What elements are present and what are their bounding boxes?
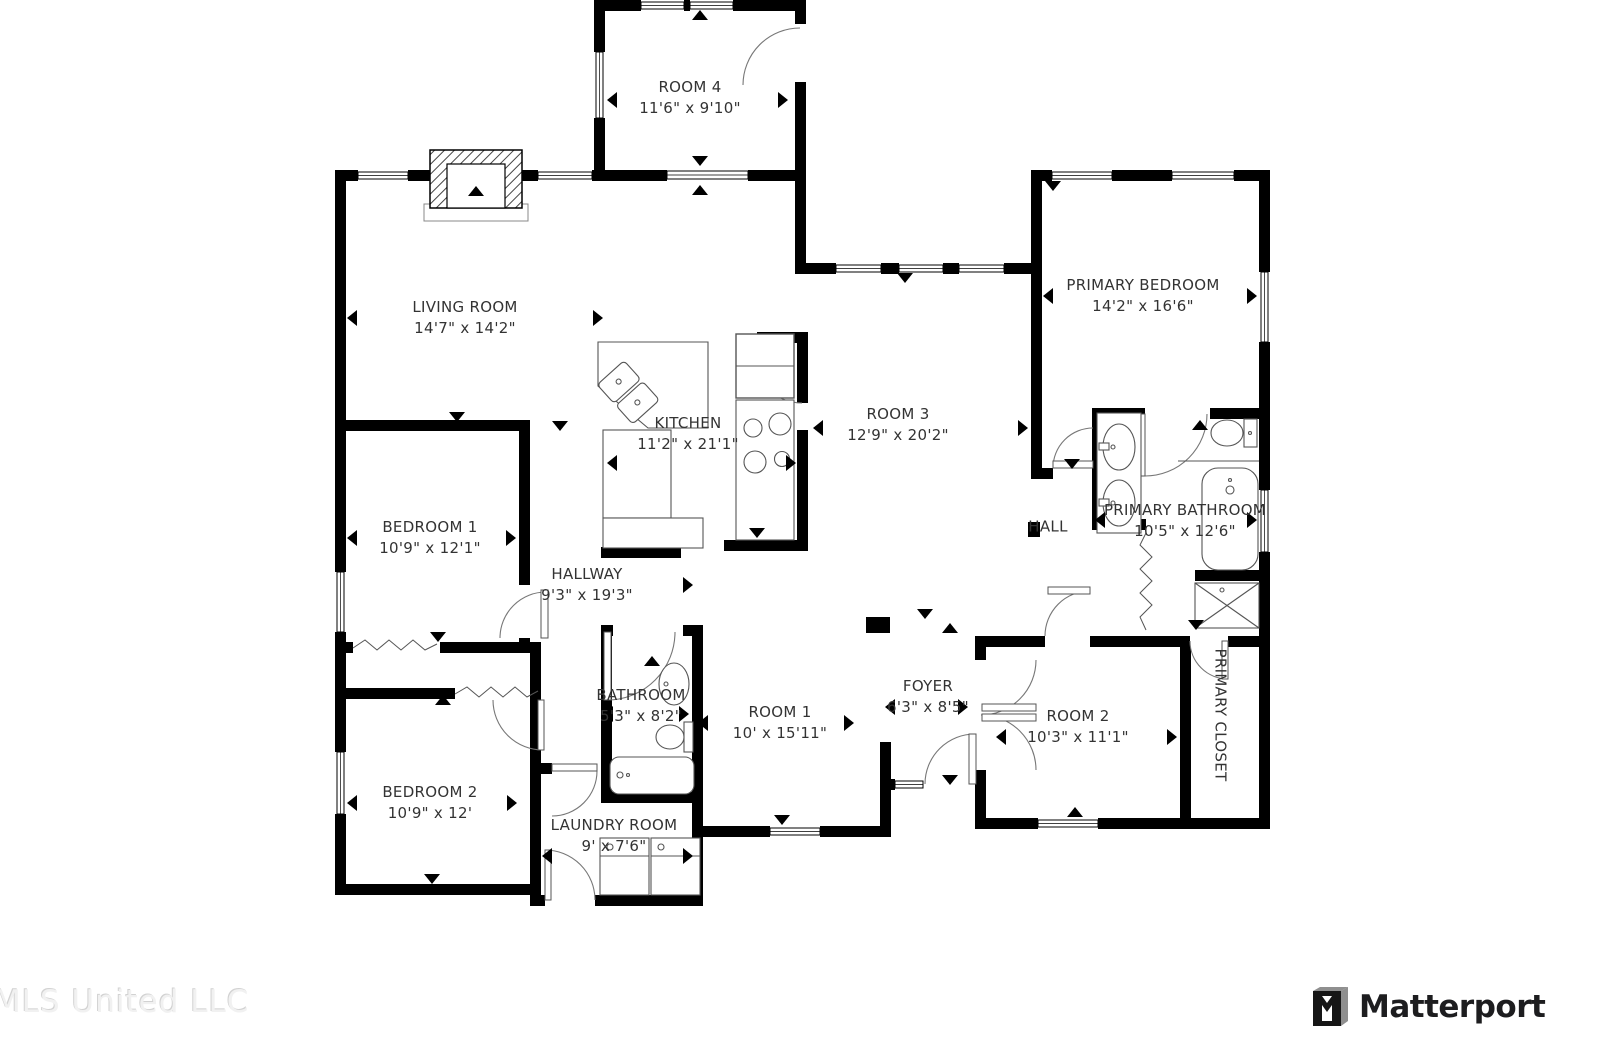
marker-triangle	[679, 706, 689, 722]
marker-triangle	[1167, 729, 1177, 745]
laundry-appliances	[600, 838, 700, 895]
marker-triangle	[958, 699, 968, 715]
wall	[335, 688, 455, 699]
wall	[975, 770, 986, 829]
wall	[1031, 181, 1042, 468]
wall	[594, 118, 605, 176]
wall	[795, 263, 836, 274]
wall	[1195, 570, 1259, 581]
door-arc	[981, 715, 1036, 770]
wall	[820, 826, 887, 837]
door-leaf	[538, 700, 544, 750]
marker-triangle	[813, 420, 823, 436]
door-leaf	[982, 714, 1036, 721]
door-leaf	[982, 704, 1036, 711]
kitchen-counter	[603, 430, 671, 518]
wall	[530, 763, 552, 774]
marker-triangle	[692, 185, 708, 195]
wall	[1234, 170, 1270, 181]
mls-watermark: MLS United LLC	[0, 984, 249, 1020]
wall-break	[353, 640, 437, 650]
marker-triangle	[430, 632, 446, 642]
wall	[797, 343, 808, 403]
marker-triangle	[347, 530, 357, 546]
marker-triangle	[552, 421, 568, 431]
wall	[1259, 181, 1270, 272]
marker-triangle	[692, 10, 708, 20]
marker-triangle	[885, 699, 895, 715]
marker-triangle	[506, 530, 516, 546]
primary-bathroom-fixtures	[1097, 413, 1259, 628]
marker-triangle	[1018, 420, 1028, 436]
wall	[1228, 636, 1270, 647]
marker-triangle	[1045, 181, 1061, 191]
door-leaf	[541, 590, 548, 638]
marker-triangle	[607, 92, 617, 108]
marker-triangle	[996, 729, 1006, 745]
matterport-logo: Matterport	[1308, 984, 1545, 1030]
wall	[881, 263, 899, 274]
marker-triangle	[774, 815, 790, 825]
floor-plan-canvas: ROOM 411'6" x 9'10"LIVING ROOM14'7" x 14…	[0, 0, 1600, 1055]
wall	[1112, 170, 1172, 181]
marker-triangle	[347, 795, 357, 811]
wall	[335, 884, 541, 895]
wall	[594, 0, 641, 11]
burner	[769, 413, 791, 435]
floor-plan-drawing	[0, 0, 1600, 1055]
wall	[1028, 522, 1040, 537]
wall	[1259, 552, 1270, 829]
wall	[440, 642, 541, 653]
wall	[1180, 636, 1190, 647]
door-leaf	[552, 764, 597, 771]
marker-triangle	[844, 715, 854, 731]
wall	[797, 430, 808, 551]
fireplace-icon	[424, 150, 528, 221]
wall	[1180, 647, 1191, 829]
marker-triangle	[942, 775, 958, 785]
wall	[975, 636, 986, 660]
wall	[601, 547, 681, 558]
wall-break	[455, 687, 538, 697]
toilet-tank	[684, 722, 693, 752]
door-arc	[552, 771, 597, 816]
marker-triangle	[507, 795, 517, 811]
kitchen-counter	[603, 518, 703, 548]
wall	[595, 895, 703, 906]
marker-triangle	[424, 874, 440, 884]
wall	[724, 540, 808, 551]
kitchen-fixtures	[597, 334, 794, 548]
wall	[1210, 408, 1270, 419]
wall	[684, 0, 690, 11]
wall	[335, 170, 346, 572]
marker-triangle	[778, 92, 788, 108]
wall	[335, 170, 358, 181]
marker-triangle	[1247, 288, 1257, 304]
wall	[692, 826, 770, 837]
marker-triangle	[1043, 288, 1053, 304]
marker-triangle	[347, 310, 357, 326]
door-arc	[1045, 591, 1090, 636]
door-leaf	[1222, 641, 1228, 679]
wall	[1031, 170, 1052, 181]
marker-triangle	[683, 577, 693, 593]
marker-triangle	[593, 310, 603, 326]
wall-break	[1140, 533, 1152, 630]
door-leaf	[1048, 587, 1090, 594]
door-arc	[500, 592, 546, 638]
door-leaf	[969, 734, 976, 784]
wall	[748, 170, 806, 181]
wall	[530, 895, 545, 906]
wall	[880, 779, 895, 790]
matterport-icon	[1308, 984, 1350, 1030]
wall-break-lines	[353, 533, 1152, 697]
wall	[335, 814, 346, 895]
matterport-wordmark: Matterport	[1359, 989, 1545, 1025]
marker-triangle	[644, 656, 660, 666]
marker-triangle	[917, 609, 933, 619]
wall	[335, 420, 530, 431]
wall	[943, 263, 959, 274]
wall	[1031, 468, 1053, 479]
wall	[866, 617, 890, 633]
marker-triangle	[897, 273, 913, 283]
wall	[335, 642, 353, 653]
marker-triangle	[692, 156, 708, 166]
door-leaf	[604, 632, 611, 700]
marker-triangle	[1067, 807, 1083, 817]
toilet-bowl	[1211, 420, 1243, 446]
burner	[744, 451, 766, 473]
burner	[744, 419, 762, 437]
wall	[605, 170, 667, 181]
door-arc	[743, 28, 800, 85]
toilet-bowl	[656, 725, 684, 749]
marker-triangle	[942, 623, 958, 633]
door-arc	[545, 850, 595, 900]
wall	[795, 0, 806, 24]
wall	[519, 420, 530, 585]
